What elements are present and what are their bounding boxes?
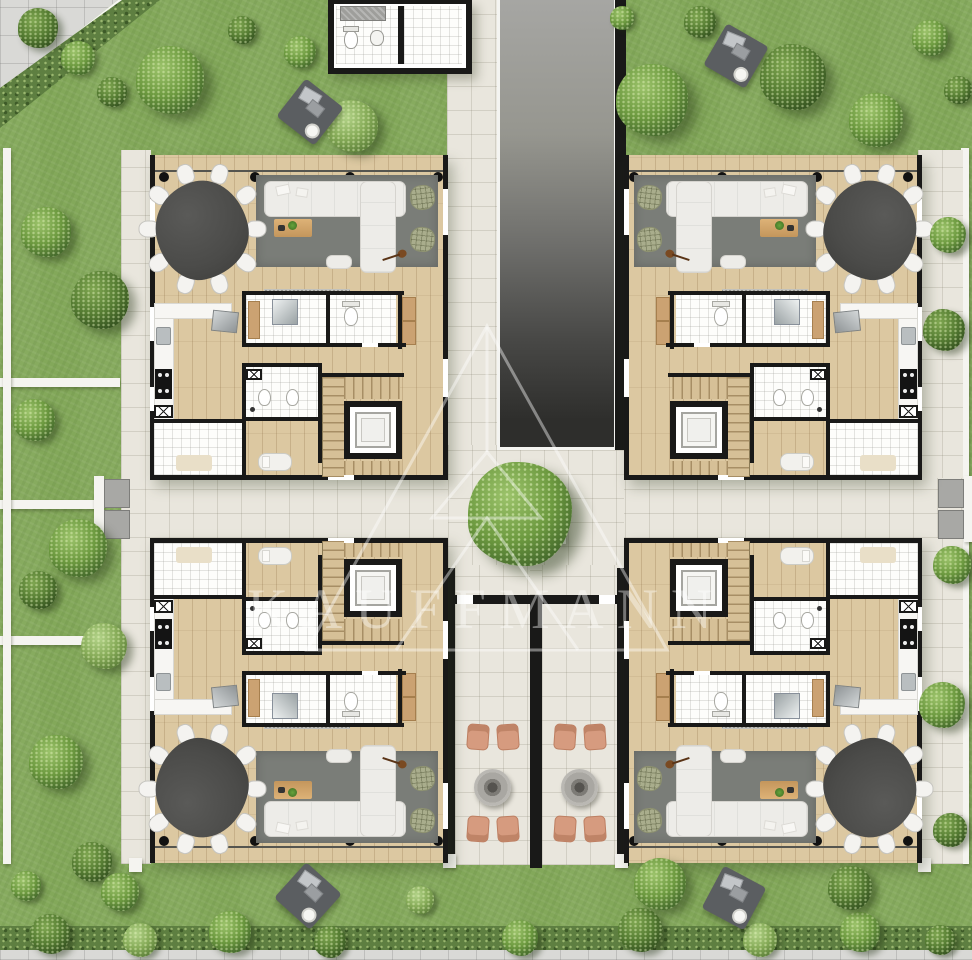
staircase-upper-flight	[344, 619, 400, 641]
fridge	[833, 685, 861, 709]
vanity	[812, 679, 824, 717]
garden-gate-steps	[936, 476, 972, 542]
floor-mat	[176, 547, 212, 563]
staircase-upper-flight	[672, 619, 728, 641]
burner-icon	[165, 389, 169, 393]
inner-wall	[242, 363, 246, 421]
inner-wall	[826, 595, 922, 599]
inner-wall	[670, 291, 674, 349]
gate-step	[104, 510, 130, 539]
burner-icon	[903, 389, 907, 393]
inner-wall	[826, 291, 830, 347]
inner-wall	[668, 641, 754, 645]
inner-wall	[242, 343, 406, 347]
daybed-pillow	[262, 456, 270, 468]
garden-tree	[81, 623, 127, 669]
shower-head-icon	[817, 606, 822, 611]
garden-tree	[61, 41, 95, 75]
duct-shaft-icon	[899, 405, 918, 418]
garden-tree	[284, 36, 316, 68]
vanity	[248, 301, 260, 339]
staircase-lower-flight	[344, 461, 402, 475]
sink-icon	[370, 30, 384, 46]
shower-head-icon	[250, 407, 255, 412]
burner-icon	[158, 373, 162, 377]
burner-icon	[910, 389, 914, 393]
wardrobe	[402, 297, 416, 345]
wc-partition-wall	[398, 6, 404, 64]
fridge	[211, 685, 239, 709]
cooktop	[155, 369, 172, 399]
inner-wall	[826, 543, 830, 599]
patio-chair	[466, 815, 490, 842]
toilet-icon	[714, 692, 728, 711]
elevator-cab	[687, 576, 711, 600]
garden-tree	[314, 926, 346, 958]
garden-tree	[618, 908, 662, 952]
burner-icon	[158, 389, 162, 393]
toilet-tank	[712, 711, 730, 717]
inner-wall	[326, 673, 330, 723]
window-opening	[443, 621, 448, 659]
tray-icon	[787, 225, 794, 231]
elevator-cab	[687, 418, 711, 442]
picnic-blanket	[702, 866, 767, 931]
plant-icon	[775, 221, 784, 230]
terrace-glass-line	[624, 846, 922, 848]
inner-wall	[242, 597, 322, 601]
garden-tree	[49, 519, 107, 577]
side-table	[731, 64, 751, 84]
burner-icon	[165, 373, 169, 377]
inner-wall	[826, 419, 922, 423]
garden-tree	[11, 871, 41, 901]
fire-pit	[474, 769, 511, 806]
column	[903, 172, 913, 182]
inner-wall	[398, 669, 402, 727]
inner-wall	[242, 651, 322, 655]
burner-icon	[158, 625, 162, 629]
duct-shaft-icon	[154, 405, 173, 418]
inner-wall	[326, 295, 330, 345]
terrace-glass-line	[150, 170, 448, 172]
kitchen-sink	[901, 327, 916, 345]
inner-wall	[666, 671, 830, 675]
garden-tree	[72, 842, 112, 882]
inner-wall	[318, 373, 404, 377]
burner-icon	[910, 373, 914, 377]
inner-wall	[826, 419, 830, 475]
window-opening	[443, 359, 448, 397]
cooktop	[900, 619, 917, 649]
inner-wall	[666, 343, 830, 347]
burner-icon	[910, 625, 914, 629]
garden-tree	[616, 64, 688, 136]
sofa-pillow	[763, 820, 776, 831]
side-table	[302, 120, 323, 141]
duct-shaft-icon	[899, 600, 918, 613]
staircase	[728, 541, 750, 641]
window-opening	[443, 783, 448, 829]
garden-tree	[743, 923, 777, 957]
inner-wall	[150, 419, 246, 423]
garden-tree	[209, 911, 251, 953]
plan-layers	[0, 0, 972, 960]
gate-step	[938, 479, 964, 508]
wardrobe	[656, 673, 670, 721]
kitchen-counter	[898, 595, 918, 715]
dining-chair	[247, 781, 267, 798]
inner-wall	[742, 673, 746, 723]
blanket-pillow	[729, 885, 749, 903]
tray-icon	[787, 787, 794, 793]
patio-chair	[553, 815, 577, 842]
inner-wall	[668, 291, 830, 295]
entrance-wc	[328, 0, 472, 74]
garden-tree	[634, 858, 686, 910]
wardrobe	[656, 297, 670, 345]
floor-mat	[860, 455, 896, 471]
kitchen-counter	[154, 595, 174, 715]
column	[159, 172, 169, 182]
garden-wall	[0, 378, 120, 387]
inner-wall	[750, 651, 830, 655]
shower-head-icon	[250, 606, 255, 611]
bathroom	[676, 673, 826, 723]
inner-wall	[750, 363, 754, 463]
elevator-cab	[361, 576, 385, 600]
staircase	[728, 377, 750, 477]
inner-wall	[242, 597, 246, 655]
door-opening	[694, 671, 710, 675]
elevator	[670, 401, 728, 459]
burner-icon	[165, 641, 169, 645]
bathroom	[246, 295, 396, 345]
patio-b	[542, 604, 617, 868]
elevator	[344, 559, 402, 617]
toilet-icon	[258, 612, 271, 629]
floor-mat	[176, 455, 212, 471]
garden-tree	[930, 217, 966, 253]
garden-tree	[610, 6, 634, 30]
garden-tree	[919, 682, 965, 728]
duct-shaft-icon	[246, 638, 262, 649]
patio-door-opening	[599, 595, 615, 604]
toilet-icon	[286, 389, 299, 406]
inner-wall	[750, 597, 830, 601]
garden-tree	[21, 207, 71, 257]
gate-post	[964, 476, 972, 542]
staircase	[322, 541, 344, 641]
toilet-icon	[286, 612, 299, 629]
inner-wall	[242, 671, 246, 727]
plant-icon	[775, 788, 784, 797]
garden-wall	[0, 500, 98, 509]
window-opening	[624, 189, 629, 235]
shower-glass	[774, 693, 800, 719]
window-opening	[624, 359, 629, 397]
apartment-unit-top-right	[624, 155, 922, 480]
garden-tree	[406, 886, 434, 914]
inner-wall	[750, 555, 754, 655]
shower-glass	[272, 693, 298, 719]
toilet-tank	[343, 26, 359, 32]
toilet-icon	[258, 389, 271, 406]
garden-tree	[136, 46, 204, 114]
guitar-neck	[672, 254, 690, 261]
inner-wall	[150, 595, 246, 599]
garden-wall	[3, 148, 11, 864]
blanket-pillow	[731, 43, 751, 61]
garden-tree	[101, 873, 139, 911]
patio-door-opening	[457, 595, 473, 604]
dining-chair	[247, 221, 267, 238]
duct-shaft-icon	[154, 600, 173, 613]
fridge	[833, 310, 861, 334]
daybed-pillow	[802, 550, 810, 562]
inner-wall	[242, 291, 404, 295]
inner-wall	[668, 723, 830, 727]
shower-glass	[774, 299, 800, 325]
burner-icon	[903, 373, 907, 377]
toilet-icon	[344, 307, 358, 326]
column	[159, 836, 169, 846]
garden-tree	[840, 912, 880, 952]
toilet-tank	[342, 711, 360, 717]
patio-chair	[583, 815, 607, 842]
garden-tree	[19, 571, 57, 609]
floorplan-canvas: KAUFFMANN	[0, 0, 972, 960]
guitar-body	[664, 759, 675, 769]
inner-wall	[242, 363, 322, 367]
garden-tree	[18, 8, 58, 48]
toilet-icon	[801, 612, 814, 629]
kitchen-sink	[156, 673, 171, 691]
inner-wall	[242, 671, 406, 675]
guitar-neck	[382, 757, 400, 764]
apartment-unit-bottom-right	[624, 538, 922, 863]
patio-chair	[496, 815, 520, 842]
apartment-unit-bottom-left	[150, 538, 448, 863]
burner-icon	[903, 625, 907, 629]
window-opening	[624, 621, 629, 659]
patio-a	[455, 604, 530, 868]
daybed-pillow	[262, 550, 270, 562]
kitchen-sink	[901, 673, 916, 691]
inner-wall	[242, 723, 404, 727]
inner-wall	[668, 373, 754, 377]
kitchen-sink	[156, 327, 171, 345]
sofa-pillow	[763, 187, 776, 198]
elevator	[670, 559, 728, 617]
shower-glass	[272, 299, 298, 325]
courtyard-tree	[468, 462, 572, 566]
wc-room	[404, 6, 462, 64]
door-opening	[694, 343, 710, 347]
patio-block	[443, 565, 629, 868]
garden-tree	[912, 20, 948, 56]
inner-wall	[242, 291, 246, 347]
garden-tree	[30, 914, 70, 954]
garden-tree	[849, 93, 903, 147]
patio-chair	[466, 723, 490, 750]
garden-tree	[228, 16, 256, 44]
toilet-icon	[801, 389, 814, 406]
tray-icon	[278, 225, 285, 231]
patio-chair	[583, 723, 607, 750]
guitar-neck	[672, 757, 690, 764]
elevator-cab	[361, 418, 385, 442]
sofa-ottoman	[326, 749, 352, 763]
inner-wall	[826, 671, 830, 727]
bathroom	[676, 295, 826, 345]
staircase-upper-flight	[344, 377, 400, 399]
garden-tree	[29, 735, 83, 789]
sofa-pillow	[295, 187, 308, 198]
patio-divider-wall	[530, 595, 542, 868]
burner-icon	[158, 641, 162, 645]
toilet-icon	[344, 692, 358, 711]
staircase-upper-flight	[672, 377, 728, 399]
garden-tree	[933, 813, 967, 847]
sofa-ottoman	[720, 749, 746, 763]
fire-pit	[561, 769, 598, 806]
window-opening	[624, 783, 629, 829]
inner-wall	[242, 543, 246, 599]
toilet-icon	[773, 389, 786, 406]
terrace-glass-line	[150, 846, 448, 848]
side-table	[729, 906, 749, 926]
inner-wall	[750, 363, 830, 367]
inner-wall	[742, 295, 746, 345]
vanity	[248, 679, 260, 717]
garden-tree	[923, 309, 965, 351]
picnic-blanket	[274, 862, 342, 930]
patio-chair	[553, 723, 577, 750]
inner-wall	[826, 597, 830, 655]
toilet-icon	[344, 30, 358, 49]
shower-head-icon	[817, 407, 822, 412]
patio-chair	[496, 723, 520, 750]
cooktop	[155, 619, 172, 649]
inner-wall	[750, 417, 830, 421]
elevator	[344, 401, 402, 459]
bathroom	[246, 673, 396, 723]
garden-tree	[925, 925, 955, 955]
burner-icon	[903, 641, 907, 645]
sofa-pillow	[295, 820, 308, 831]
sofa-ottoman	[720, 255, 746, 269]
door-opening	[362, 343, 378, 347]
apartment-unit-top-left	[150, 155, 448, 480]
curb-post	[129, 858, 142, 872]
garden-tree	[97, 77, 127, 107]
garden-tree	[944, 76, 972, 104]
cooktop	[900, 369, 917, 399]
equipment-slab	[340, 6, 386, 21]
garden-tree	[933, 546, 971, 584]
inner-wall	[242, 419, 246, 475]
inner-wall	[242, 417, 322, 421]
column	[903, 836, 913, 846]
duct-shaft-icon	[810, 369, 826, 380]
inner-wall	[398, 291, 402, 349]
side-table	[298, 904, 319, 925]
picnic-blanket	[703, 23, 769, 89]
plant-icon	[288, 221, 297, 230]
floor-mat	[860, 547, 896, 563]
staircase-lower-flight	[670, 461, 728, 475]
burner-icon	[910, 641, 914, 645]
gate-step	[938, 510, 964, 539]
toilet-icon	[714, 307, 728, 326]
gate-step	[104, 479, 130, 508]
staircase-lower-flight	[344, 543, 402, 557]
door-opening	[362, 671, 378, 675]
window-opening	[443, 189, 448, 235]
unit-wall	[624, 475, 922, 480]
garden-tree	[13, 399, 55, 441]
fridge	[211, 310, 239, 334]
duct-shaft-icon	[246, 369, 262, 380]
garden-tree	[684, 6, 716, 38]
staircase	[322, 377, 344, 477]
vanity	[812, 301, 824, 339]
guitar-neck	[382, 254, 400, 261]
wardrobe	[402, 673, 416, 721]
tray-icon	[278, 787, 285, 793]
garden-tree	[123, 923, 157, 957]
garden-tree	[502, 920, 538, 956]
plant-icon	[288, 788, 297, 797]
unit-wall	[150, 475, 448, 480]
daybed-pillow	[802, 456, 810, 468]
garden-tree	[828, 866, 872, 910]
driveway-ramp	[497, 0, 617, 450]
inner-wall	[318, 641, 404, 645]
inner-wall	[826, 363, 830, 421]
inner-wall	[670, 669, 674, 727]
toilet-icon	[773, 612, 786, 629]
garden-tree	[760, 44, 826, 110]
staircase-lower-flight	[670, 543, 728, 557]
duct-shaft-icon	[810, 638, 826, 649]
sofa-ottoman	[326, 255, 352, 269]
garden-tree	[71, 271, 129, 329]
burner-icon	[165, 625, 169, 629]
